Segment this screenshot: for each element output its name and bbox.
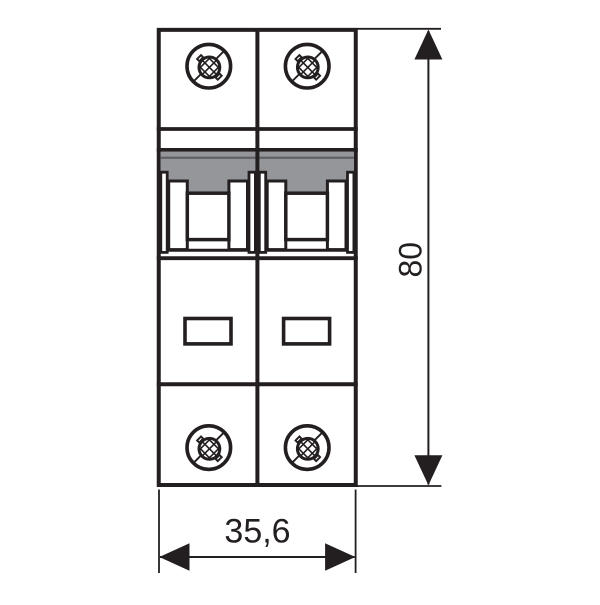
- svg-text:35,6: 35,6: [224, 513, 290, 551]
- svg-text:80: 80: [393, 242, 429, 278]
